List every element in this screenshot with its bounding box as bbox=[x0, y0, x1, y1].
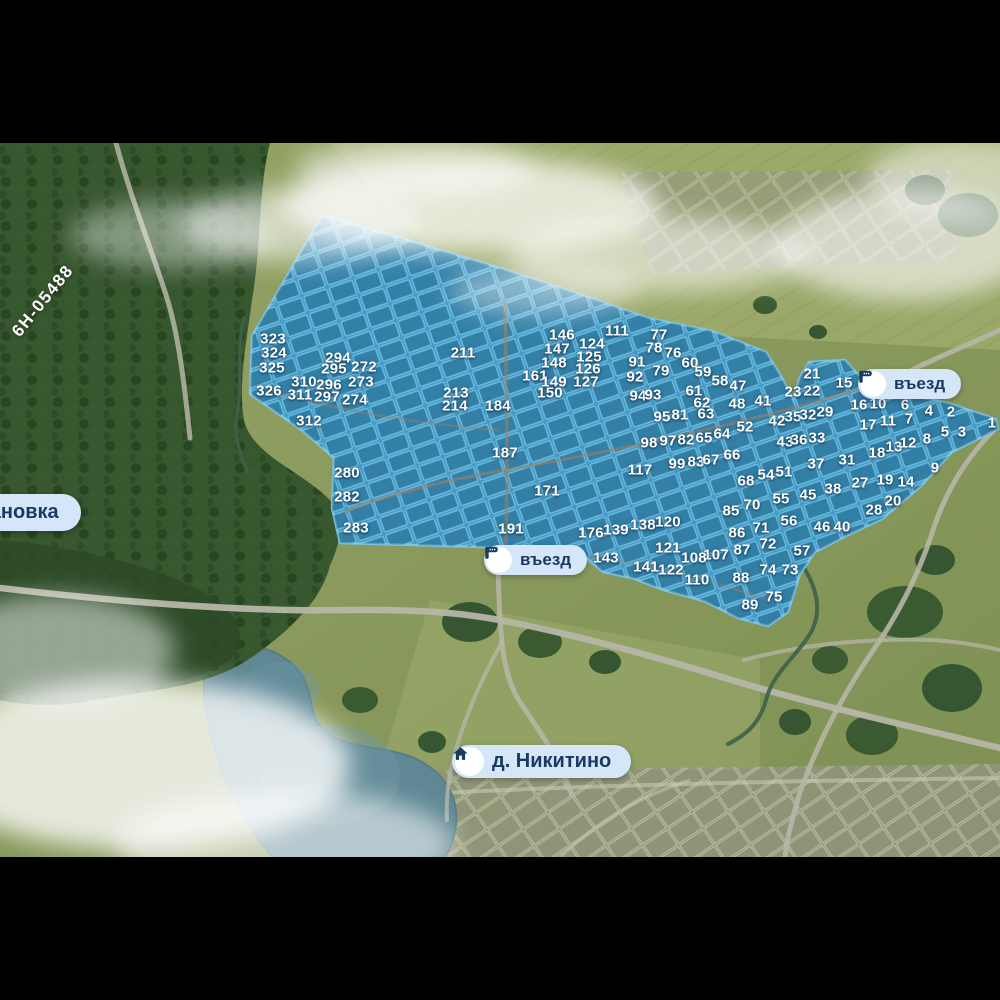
plot-label-176[interactable]: 176 bbox=[578, 525, 604, 542]
plot-label-46[interactable]: 46 bbox=[813, 519, 830, 536]
entrance-bottom-label: въезд bbox=[520, 550, 571, 570]
plot-label-93[interactable]: 93 bbox=[644, 387, 661, 404]
plot-label-8[interactable]: 8 bbox=[923, 431, 932, 448]
plot-label-29[interactable]: 29 bbox=[816, 404, 833, 421]
plot-label-191[interactable]: 191 bbox=[498, 521, 524, 538]
plot-label-20[interactable]: 20 bbox=[884, 493, 901, 510]
plot-label-17[interactable]: 17 bbox=[859, 417, 876, 434]
plot-label-27[interactable]: 27 bbox=[851, 475, 868, 492]
plot-label-32[interactable]: 32 bbox=[799, 407, 816, 424]
plot-label-42[interactable]: 42 bbox=[768, 413, 785, 430]
masterplan-map: 3233243253262942953102963112972722732743… bbox=[0, 143, 1000, 857]
plot-label-7[interactable]: 7 bbox=[905, 411, 914, 428]
plot-label-139[interactable]: 139 bbox=[603, 522, 629, 539]
plot-label-28[interactable]: 28 bbox=[865, 502, 882, 519]
entrance-top-label: въезд bbox=[894, 374, 945, 394]
plot-label-75[interactable]: 75 bbox=[765, 589, 782, 606]
plot-label-127[interactable]: 127 bbox=[573, 374, 599, 391]
plot-label-37[interactable]: 37 bbox=[807, 456, 824, 473]
plot-label-73[interactable]: 73 bbox=[781, 562, 798, 579]
plot-label-82[interactable]: 82 bbox=[677, 432, 694, 449]
plot-label-74[interactable]: 74 bbox=[759, 562, 776, 579]
village-marker: д. Никитино bbox=[452, 745, 631, 778]
plot-label-211[interactable]: 211 bbox=[451, 345, 476, 362]
barrier-icon bbox=[486, 547, 512, 573]
plot-label-66[interactable]: 66 bbox=[723, 447, 740, 464]
plot-label-41[interactable]: 41 bbox=[754, 393, 771, 410]
plot-label-81[interactable]: 81 bbox=[671, 407, 688, 424]
plot-label-64[interactable]: 64 bbox=[713, 426, 730, 443]
plot-label-36[interactable]: 36 bbox=[790, 432, 807, 449]
plot-label-11[interactable]: 11 bbox=[880, 413, 896, 430]
plot-label-282[interactable]: 282 bbox=[334, 489, 360, 506]
bus-stop-marker: тановка bbox=[0, 494, 81, 531]
plot-label-3[interactable]: 3 bbox=[958, 424, 967, 441]
plot-label-120[interactable]: 120 bbox=[655, 514, 681, 531]
plot-label-76[interactable]: 76 bbox=[664, 345, 681, 362]
plot-label-117[interactable]: 117 bbox=[628, 462, 653, 479]
bus-stop-label: тановка bbox=[0, 501, 59, 524]
plot-label-70[interactable]: 70 bbox=[743, 497, 760, 514]
plot-label-14[interactable]: 14 bbox=[897, 474, 914, 491]
plot-label-78[interactable]: 78 bbox=[645, 340, 662, 357]
plot-label-19[interactable]: 19 bbox=[876, 472, 893, 489]
plot-label-214[interactable]: 214 bbox=[442, 398, 468, 415]
plot-label-31[interactable]: 31 bbox=[838, 452, 855, 469]
plot-label-47[interactable]: 47 bbox=[729, 378, 746, 395]
plot-label-71[interactable]: 71 bbox=[752, 520, 769, 537]
plot-label-85[interactable]: 85 bbox=[722, 503, 739, 520]
plot-label-110[interactable]: 110 bbox=[685, 572, 710, 589]
plot-label-15[interactable]: 15 bbox=[835, 375, 852, 392]
plot-label-273[interactable]: 273 bbox=[348, 374, 374, 391]
plot-label-58[interactable]: 58 bbox=[711, 373, 728, 390]
plot-label-2[interactable]: 2 bbox=[947, 404, 956, 421]
plot-label-33[interactable]: 33 bbox=[808, 430, 825, 447]
plot-label-1[interactable]: 1 bbox=[988, 415, 997, 432]
plot-label-12[interactable]: 12 bbox=[899, 435, 916, 452]
plot-label-121[interactable]: 121 bbox=[655, 540, 681, 557]
plot-label-325[interactable]: 325 bbox=[259, 360, 285, 377]
plot-label-184[interactable]: 184 bbox=[485, 398, 511, 415]
plot-label-68[interactable]: 68 bbox=[737, 473, 754, 490]
plot-label-297[interactable]: 297 bbox=[314, 389, 340, 406]
plot-label-16[interactable]: 16 bbox=[850, 397, 867, 414]
plot-label-55[interactable]: 55 bbox=[772, 491, 789, 508]
plot-label-141[interactable]: 141 bbox=[633, 559, 659, 576]
plot-label-280[interactable]: 280 bbox=[334, 465, 360, 482]
plot-label-79[interactable]: 79 bbox=[652, 363, 669, 380]
screenshot-stage: 3233243253262942953102963112972722732743… bbox=[0, 0, 1000, 1000]
plot-label-51[interactable]: 51 bbox=[775, 464, 792, 481]
plot-label-99[interactable]: 99 bbox=[668, 456, 685, 473]
entrance-marker-bottom: въезд bbox=[484, 545, 587, 575]
plot-label-23[interactable]: 23 bbox=[784, 384, 801, 401]
plot-label-95[interactable]: 95 bbox=[653, 409, 670, 426]
plot-label-59[interactable]: 59 bbox=[694, 364, 711, 381]
plot-label-21[interactable]: 21 bbox=[803, 366, 820, 383]
plot-label-22[interactable]: 22 bbox=[803, 383, 820, 400]
plot-label-87[interactable]: 87 bbox=[733, 542, 750, 559]
plot-label-4[interactable]: 4 bbox=[925, 403, 934, 420]
plot-label-65[interactable]: 65 bbox=[695, 430, 712, 447]
plot-label-326[interactable]: 326 bbox=[256, 383, 282, 400]
plot-label-40[interactable]: 40 bbox=[833, 519, 850, 536]
plot-label-56[interactable]: 56 bbox=[780, 513, 797, 530]
plot-label-295[interactable]: 295 bbox=[321, 361, 347, 378]
plot-label-18[interactable]: 18 bbox=[868, 445, 885, 462]
plot-label-48[interactable]: 48 bbox=[728, 396, 745, 413]
plot-label-5[interactable]: 5 bbox=[941, 424, 950, 441]
plot-label-111[interactable]: 111 bbox=[605, 323, 629, 340]
plot-label-283[interactable]: 283 bbox=[343, 520, 369, 537]
plot-label-311[interactable]: 311 bbox=[288, 387, 313, 404]
plot-label-171[interactable]: 171 bbox=[534, 483, 560, 500]
plot-label-52[interactable]: 52 bbox=[736, 419, 753, 436]
village-label: д. Никитино bbox=[492, 750, 611, 773]
plot-label-9[interactable]: 9 bbox=[931, 460, 940, 477]
plot-label-63[interactable]: 63 bbox=[697, 406, 714, 423]
plot-label-108[interactable]: 108 bbox=[681, 550, 707, 567]
plot-label-38[interactable]: 38 bbox=[824, 481, 841, 498]
plot-label-187[interactable]: 187 bbox=[492, 445, 518, 462]
plot-label-57[interactable]: 57 bbox=[793, 543, 810, 560]
plot-label-138[interactable]: 138 bbox=[630, 517, 656, 534]
entrance-marker-top: въезд bbox=[858, 369, 961, 399]
plot-label-150[interactable]: 150 bbox=[537, 385, 563, 402]
plot-label-97[interactable]: 97 bbox=[659, 433, 676, 450]
plot-label-274[interactable]: 274 bbox=[342, 392, 368, 409]
plot-label-312[interactable]: 312 bbox=[296, 413, 322, 430]
plot-label-45[interactable]: 45 bbox=[799, 487, 816, 504]
plot-label-122[interactable]: 122 bbox=[658, 562, 684, 579]
plot-label-72[interactable]: 72 bbox=[759, 536, 776, 553]
plot-label-88[interactable]: 88 bbox=[732, 570, 749, 587]
plot-label-54[interactable]: 54 bbox=[757, 467, 774, 484]
house-icon bbox=[455, 747, 484, 776]
plot-label-98[interactable]: 98 bbox=[640, 435, 657, 452]
plot-label-143[interactable]: 143 bbox=[593, 550, 619, 567]
plot-label-86[interactable]: 86 bbox=[728, 525, 745, 542]
plot-label-89[interactable]: 89 bbox=[741, 597, 758, 614]
barrier-icon bbox=[860, 371, 886, 397]
plot-label-67[interactable]: 67 bbox=[702, 452, 719, 469]
plot-label-92[interactable]: 92 bbox=[626, 369, 643, 386]
